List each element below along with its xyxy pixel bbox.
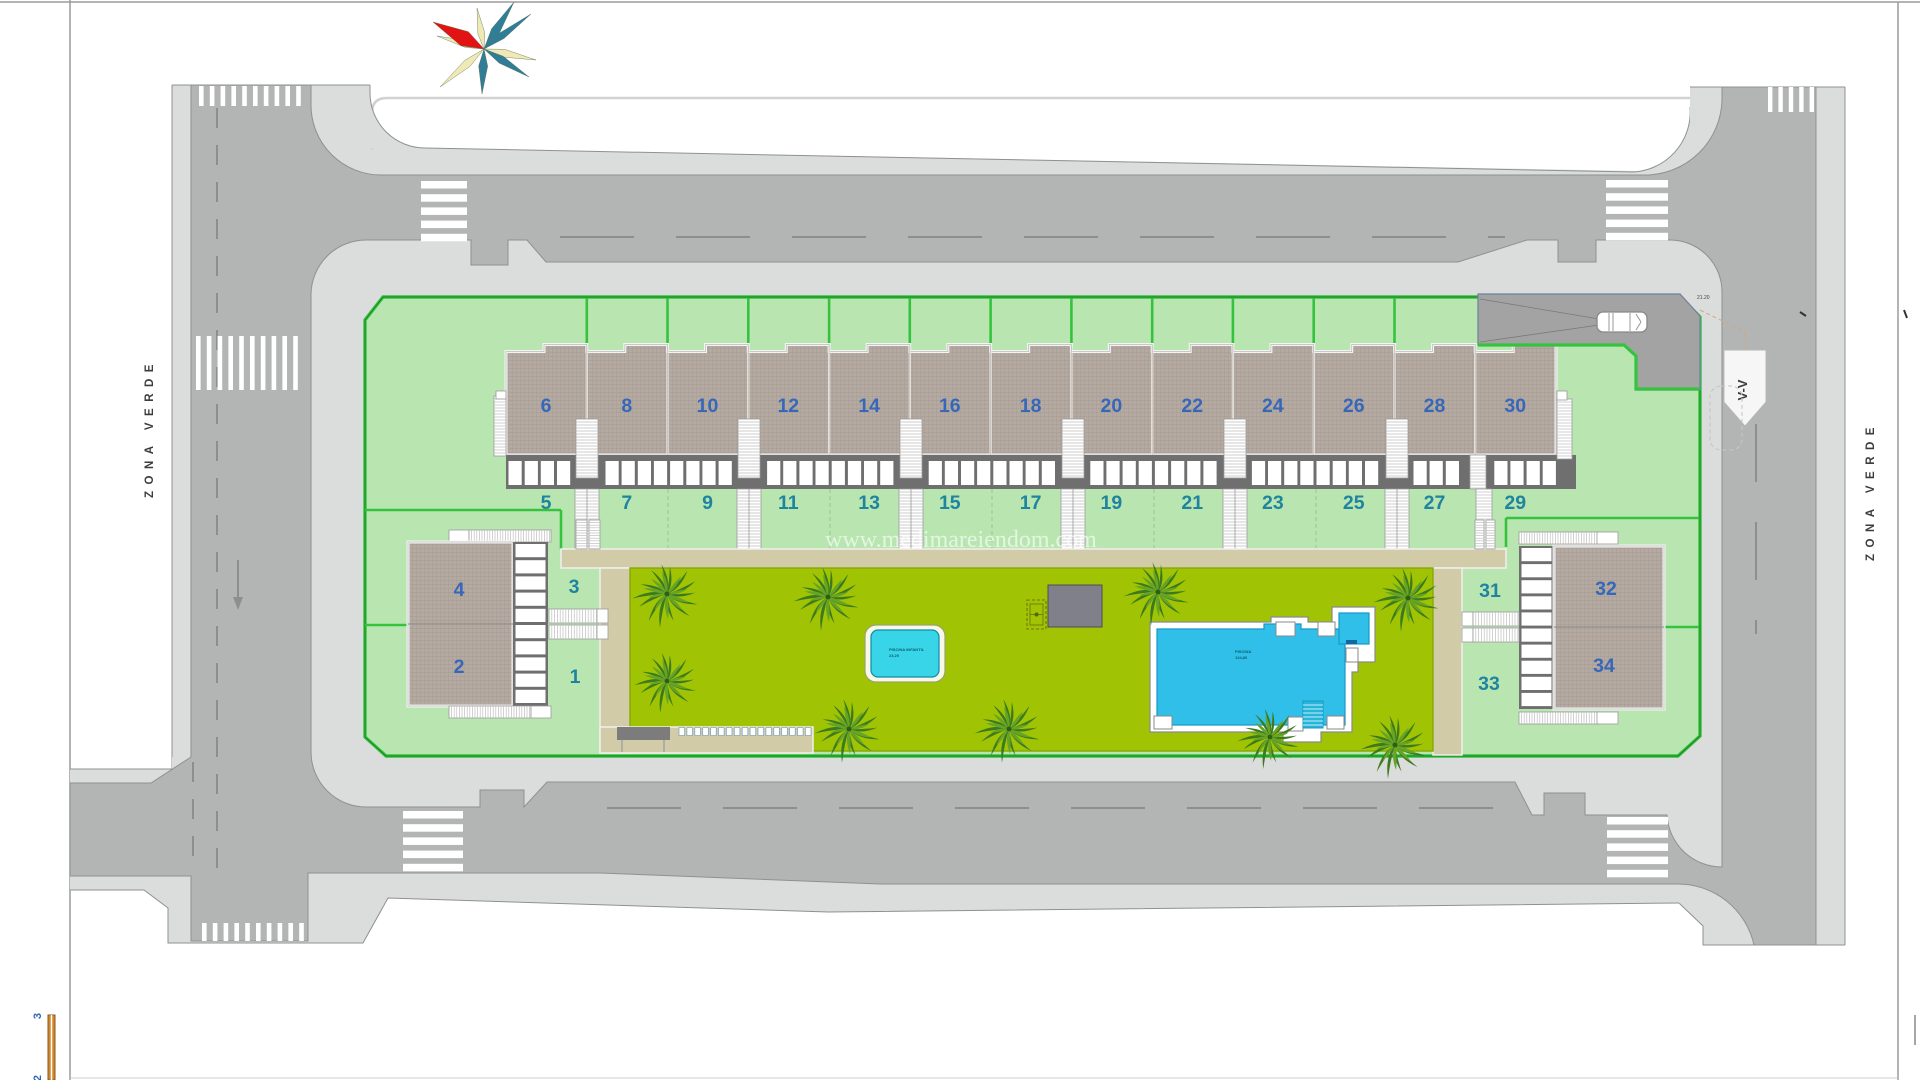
svg-text:34: 34 xyxy=(1593,655,1615,677)
svg-text:8: 8 xyxy=(621,395,632,417)
svg-text:17: 17 xyxy=(1020,492,1042,514)
svg-text:18: 18 xyxy=(1020,395,1042,417)
svg-text:12: 12 xyxy=(777,395,799,417)
svg-text:20: 20 xyxy=(1101,395,1123,417)
svg-text:33: 33 xyxy=(1478,673,1500,695)
svg-text:11: 11 xyxy=(778,492,799,514)
svg-text:10: 10 xyxy=(697,395,719,417)
svg-text:134,80: 134,80 xyxy=(1235,655,1248,660)
svg-text:PISCINA: PISCINA xyxy=(1235,649,1251,654)
svg-text:21.20: 21.20 xyxy=(1697,295,1710,301)
svg-text:24: 24 xyxy=(1262,395,1284,417)
svg-text:23: 23 xyxy=(1262,492,1284,514)
svg-text:32: 32 xyxy=(1595,578,1617,600)
svg-text:3: 3 xyxy=(32,1013,44,1019)
svg-text:23,20: 23,20 xyxy=(889,653,900,658)
svg-text:27: 27 xyxy=(1424,492,1446,514)
svg-text:15: 15 xyxy=(939,492,961,514)
svg-text:9: 9 xyxy=(702,492,713,514)
svg-text:26: 26 xyxy=(1343,395,1365,417)
svg-text:4: 4 xyxy=(454,579,465,601)
svg-text:6: 6 xyxy=(541,395,552,417)
svg-text:14: 14 xyxy=(858,395,880,417)
svg-text:2: 2 xyxy=(32,1075,44,1080)
svg-text:21: 21 xyxy=(1181,492,1203,514)
svg-text:ZONA VERDE: ZONA VERDE xyxy=(1865,421,1877,561)
svg-text:2: 2 xyxy=(454,656,465,678)
svg-text:31: 31 xyxy=(1479,580,1501,602)
svg-text:28: 28 xyxy=(1424,395,1446,417)
svg-text:ZONA VERDE: ZONA VERDE xyxy=(144,358,156,498)
svg-text:13: 13 xyxy=(858,492,880,514)
svg-text:7: 7 xyxy=(621,492,632,514)
svg-text:3: 3 xyxy=(569,576,580,598)
svg-text:www.medimareiendom.com: www.medimareiendom.com xyxy=(825,527,1097,553)
svg-text:PISCINA INFANTIL: PISCINA INFANTIL xyxy=(889,647,925,652)
svg-text:30: 30 xyxy=(1504,395,1526,417)
svg-text:29: 29 xyxy=(1504,492,1526,514)
svg-text:22: 22 xyxy=(1181,395,1203,417)
svg-text:1: 1 xyxy=(570,666,581,688)
svg-text:19: 19 xyxy=(1101,492,1123,514)
svg-text:25: 25 xyxy=(1343,492,1365,514)
svg-text:16: 16 xyxy=(939,395,961,417)
svg-text:V-V: V-V xyxy=(1735,379,1750,400)
